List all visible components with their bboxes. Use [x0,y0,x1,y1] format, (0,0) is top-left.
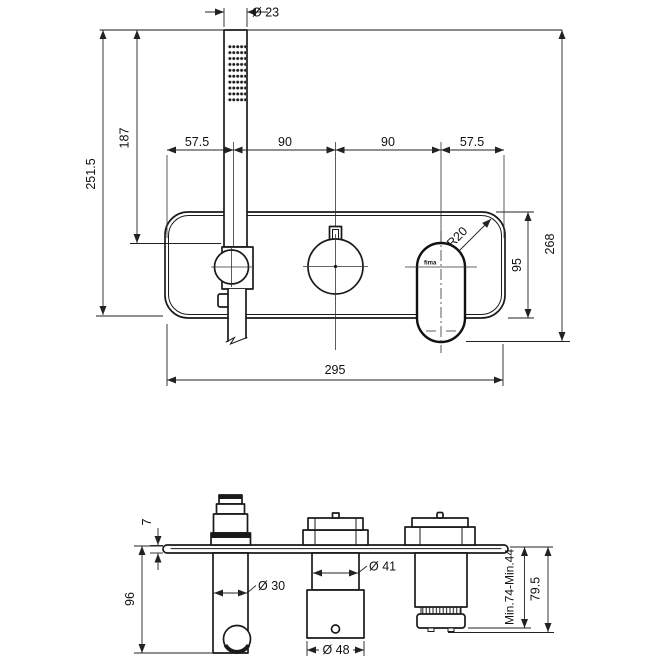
dim-label-90-right: 90 [381,135,395,149]
dim-label-575-right: 57.5 [460,135,484,149]
brand-logo: fima [424,261,437,267]
dim-label-187: 187 [118,128,132,149]
dim-label-251: 251.5 [84,158,98,189]
dim-label-d41: Ø 41 [369,560,396,574]
mixer-cartridge-fitting [405,513,475,546]
dim-valve-body-diameter: Ø 48 [307,641,364,657]
dim-overall-drop: 251.5 [84,30,163,316]
hose-mask [229,289,246,339]
diverter-body-section [307,553,364,638]
dim-label-min74: Min.74-Min.44 [503,549,517,625]
dim-label-96: 96 [123,592,137,606]
dim-label-95: 95 [510,258,524,272]
technical-drawing-page: fima Ø 23 251.5 187 57.5 [0,0,660,660]
dim-label-d30: Ø 30 [258,579,285,593]
handshower-connector-fitting [211,495,251,545]
dim-label-295: 295 [325,363,346,377]
diverter-fitting [303,513,368,545]
dim-label-575-left: 57.5 [185,135,209,149]
holder-body-section [213,553,251,653]
dim-label-7: 7 [140,518,154,525]
side-view: 7 96 Ø 30 Ø 41 Ø 48 [123,495,554,657]
dim-body-depth: 96 [123,546,212,653]
spray-face-dots [228,44,247,102]
shower-mixer-drawing: fima Ø 23 251.5 187 57.5 [0,0,660,660]
dim-label-268: 268 [543,234,557,255]
hand-shower [211,30,253,344]
dim-handshower-diameter: Ø 23 [205,6,279,28]
dim-plate-thickness: 7 [140,518,163,570]
dim-label-90-left: 90 [278,135,292,149]
dim-label-d23: Ø 23 [252,6,279,20]
dim-label-795: 79.5 [529,577,543,601]
front-view: fima Ø 23 251.5 187 57.5 [84,6,570,387]
dim-label-d48: Ø 48 [322,643,349,657]
mixer-cartridge-section [415,553,467,632]
cartridge-ridges [421,607,461,614]
plate-section [163,545,508,553]
